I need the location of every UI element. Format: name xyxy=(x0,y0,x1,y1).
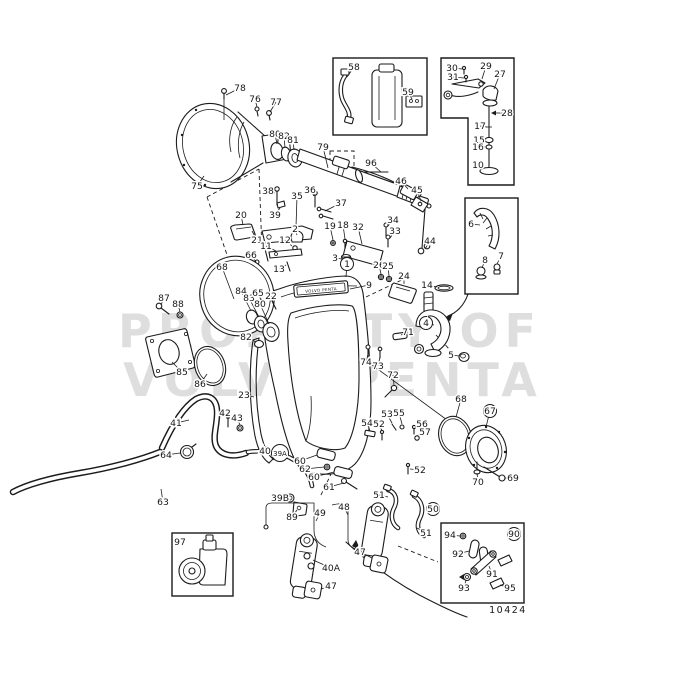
bracket-47-right xyxy=(370,555,389,574)
diagram-svg: PROPERTY OF VOLVO PENTA xyxy=(0,0,689,689)
part-label-55: 55 xyxy=(393,408,405,419)
part-label-54: 54 xyxy=(361,418,373,429)
part-label-51: 51 xyxy=(373,490,385,501)
bolt-78 xyxy=(222,89,227,99)
part-label-94: 94 xyxy=(444,530,456,541)
part-label-39B: 39B xyxy=(271,493,289,504)
part-label-68: 68 xyxy=(216,262,228,273)
clamp-64 xyxy=(181,444,197,459)
part-label-3: 3 xyxy=(332,253,338,264)
part-label-67: 67 xyxy=(484,406,496,417)
part-label-35: 35 xyxy=(291,191,303,202)
part-label-41: 41 xyxy=(170,418,182,429)
part-label-66: 66 xyxy=(245,250,257,261)
part-label-45: 45 xyxy=(411,185,423,196)
part-label-1: 1 xyxy=(344,259,350,270)
part-label-78: 78 xyxy=(234,83,246,94)
part-label-12: 12 xyxy=(279,235,291,246)
part-label-92: 92 xyxy=(452,549,464,560)
part-label-24: 24 xyxy=(398,271,410,282)
part-label-14: 14 xyxy=(421,280,433,291)
part-label-96: 96 xyxy=(365,158,377,169)
bolt-77 xyxy=(267,111,272,120)
part-label-93: 93 xyxy=(458,583,470,594)
part-label-11: 11 xyxy=(260,241,272,252)
part-label-33: 33 xyxy=(389,226,401,237)
part-label-49: 49 xyxy=(314,508,326,519)
part-label-68: 68 xyxy=(455,394,467,405)
part-label-37: 37 xyxy=(335,198,347,209)
part-label-23: 23 xyxy=(238,390,250,401)
part-label-70: 70 xyxy=(472,477,484,488)
part-label-4: 4 xyxy=(423,318,429,329)
part-label-27: 27 xyxy=(494,69,506,80)
part-label-2: 2 xyxy=(292,224,298,235)
part-label-58: 58 xyxy=(348,62,360,73)
bolt-76 xyxy=(255,107,259,116)
part-label-31: 31 xyxy=(447,72,459,83)
part-label-44: 44 xyxy=(424,236,436,247)
fittings-52-57 xyxy=(365,424,420,474)
part-label-81: 81 xyxy=(287,135,299,146)
part-label-57: 57 xyxy=(419,427,431,438)
part-label-76: 76 xyxy=(249,94,261,105)
part-label-46: 46 xyxy=(395,176,407,187)
part-label-9: 9 xyxy=(366,280,372,291)
part-label-97: 97 xyxy=(174,537,186,548)
part-label-22: 22 xyxy=(265,291,277,302)
part-label-61: 61 xyxy=(323,482,335,493)
part-label-52: 52 xyxy=(373,419,385,430)
part-label-50: 50 xyxy=(427,504,439,515)
part-label-86: 86 xyxy=(194,379,206,390)
part-label-65: 65 xyxy=(252,288,264,299)
part-label-48: 48 xyxy=(338,502,350,513)
part-label-43: 43 xyxy=(231,413,243,424)
part-label-51: 51 xyxy=(420,528,432,539)
part-label-75: 75 xyxy=(191,181,203,192)
part-label-17: 17 xyxy=(474,121,486,132)
part-label-53: 53 xyxy=(381,409,393,420)
part-label-6: 6 xyxy=(468,219,474,230)
part-label-77: 77 xyxy=(270,97,282,108)
part-label-74: 74 xyxy=(360,357,372,368)
part-label-39: 39 xyxy=(269,210,281,221)
part-label-72: 72 xyxy=(387,370,399,381)
part-label-64: 64 xyxy=(160,450,172,461)
part-label-59: 59 xyxy=(402,87,414,98)
part-label-28: 28 xyxy=(501,108,513,119)
cap-5 xyxy=(459,353,469,362)
inset-box-steering-sector xyxy=(444,198,518,321)
part-label-42: 42 xyxy=(219,408,231,419)
part-label-18: 18 xyxy=(337,220,349,231)
part-label-7: 7 xyxy=(498,251,504,262)
part-label-29: 29 xyxy=(480,61,492,72)
part-label-79: 79 xyxy=(317,142,329,153)
part-label-60: 60 xyxy=(308,472,320,483)
exhaust-hose-63 xyxy=(13,452,160,492)
drawing-number: 10424 xyxy=(489,605,527,616)
exploded-parts-diagram: PROPERTY OF VOLVO PENTA xyxy=(0,0,689,689)
part-label-20: 20 xyxy=(235,210,247,221)
part-label-88: 88 xyxy=(172,299,184,310)
part-label-71: 71 xyxy=(402,327,414,338)
part-label-40: 40 xyxy=(259,446,271,457)
part-label-13: 13 xyxy=(273,264,285,275)
part-label-87: 87 xyxy=(158,293,170,304)
part-label-16: 16 xyxy=(472,142,484,153)
part-label-73: 73 xyxy=(372,361,384,372)
part-label-34: 34 xyxy=(387,215,399,226)
part-label-19: 19 xyxy=(324,221,336,232)
part-label-90: 90 xyxy=(508,529,520,540)
part-label-32: 32 xyxy=(352,222,364,233)
part-label-38: 38 xyxy=(262,186,274,197)
part-label-39A: 39A xyxy=(273,450,287,458)
part-label-85: 85 xyxy=(176,367,188,378)
bracket-47-left xyxy=(304,581,323,600)
part-label-52: 52 xyxy=(414,465,426,476)
part-label-40A: 40A xyxy=(322,563,341,574)
part-label-95: 95 xyxy=(504,583,516,594)
part-label-5: 5 xyxy=(448,350,454,361)
part-label-8: 8 xyxy=(482,255,488,266)
part-label-69: 69 xyxy=(507,473,519,484)
part-label-89: 89 xyxy=(286,512,298,523)
part-label-47: 47 xyxy=(325,581,337,592)
part-label-82: 82 xyxy=(240,332,252,343)
part-label-25: 25 xyxy=(382,261,394,272)
part-label-91: 91 xyxy=(486,569,498,580)
part-label-63: 63 xyxy=(157,497,169,508)
part-label-10: 10 xyxy=(472,160,484,171)
part-label-36: 36 xyxy=(304,185,316,196)
part-label-47: 47 xyxy=(354,547,366,558)
